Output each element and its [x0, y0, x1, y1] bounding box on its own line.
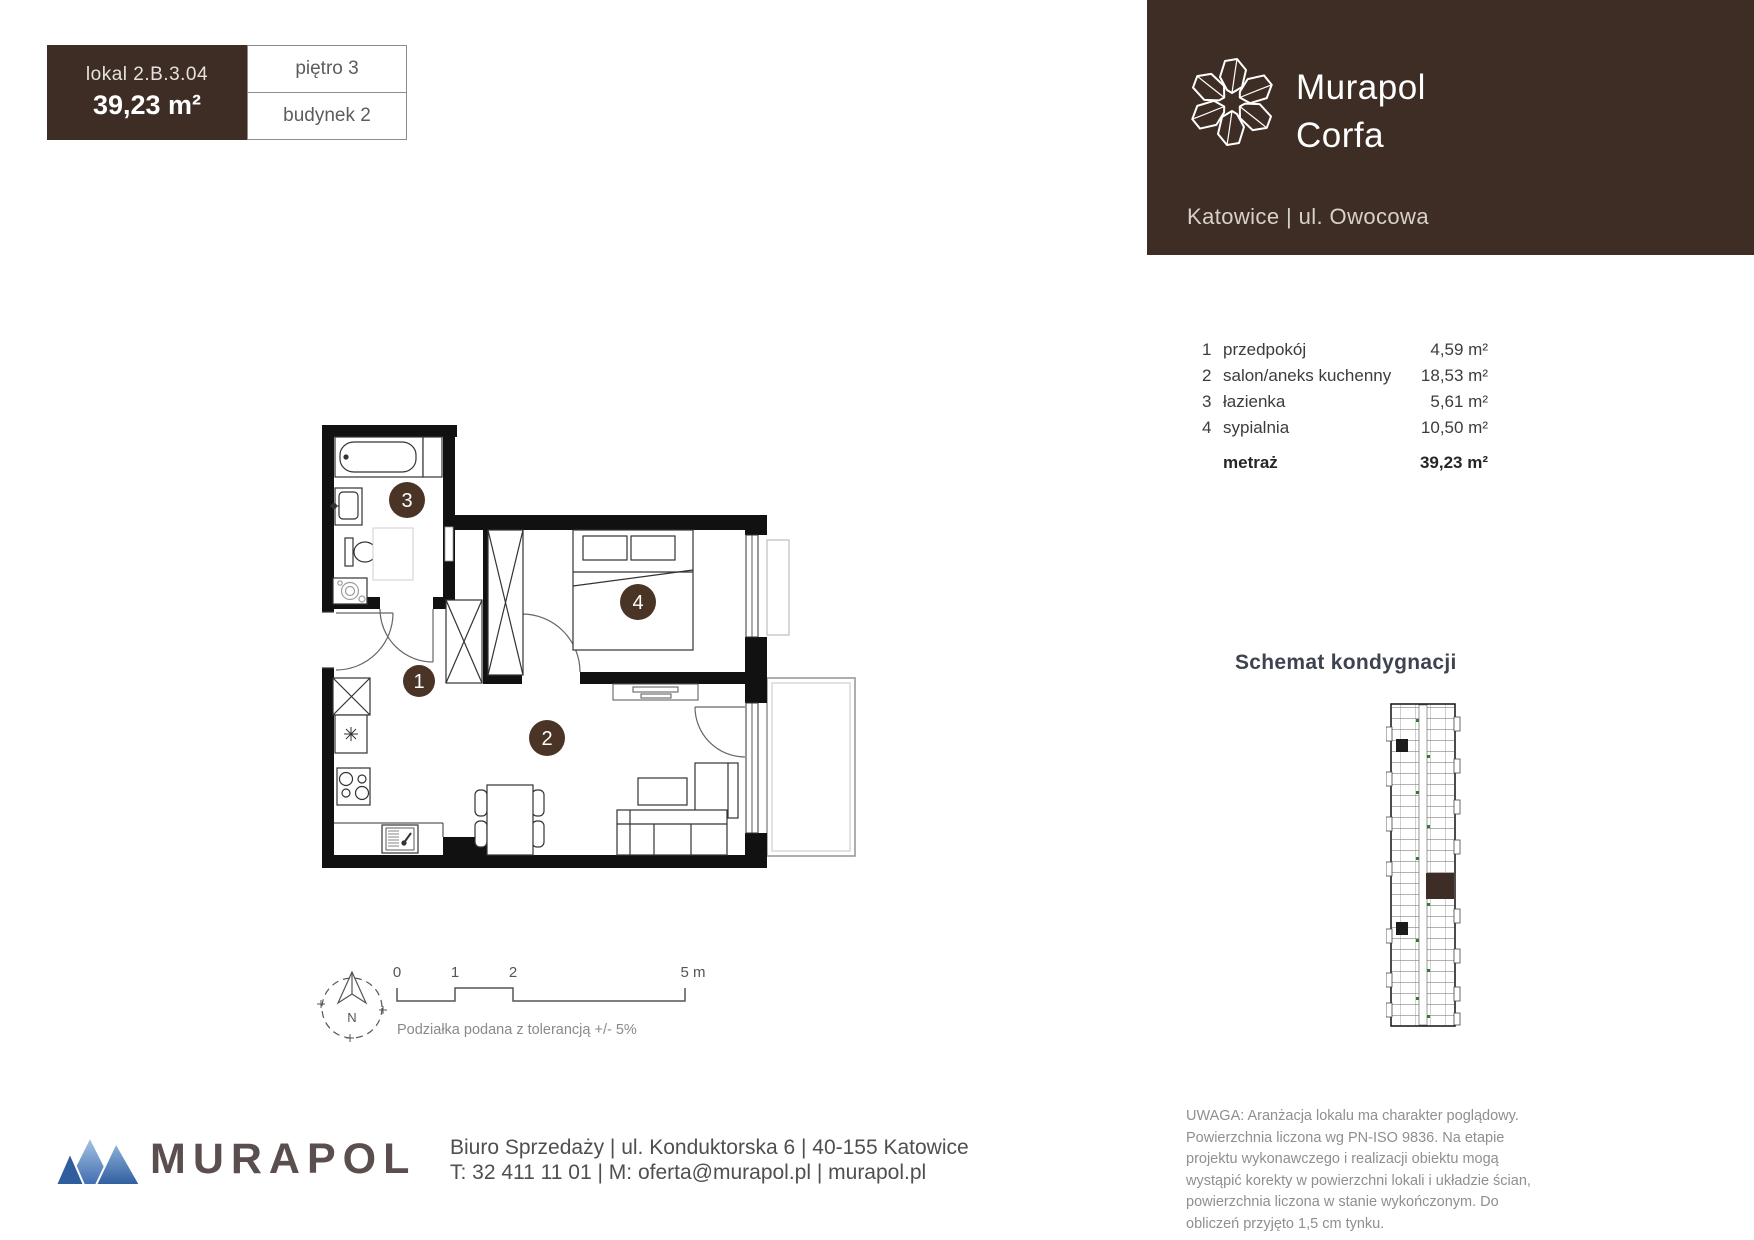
stair-core: [1396, 922, 1408, 935]
badge-living-label: 2: [541, 728, 552, 750]
svg-text:1: 1: [451, 964, 459, 981]
floor-plan: 3 1 2 4: [280, 380, 880, 880]
room-area: 10,50 m²: [1421, 418, 1488, 438]
bathroom-fixtures: [330, 437, 442, 604]
svg-text:0: 0: [393, 964, 401, 981]
scale-tolerance-note: Podziałka podana z tolerancją +/- 5%: [397, 1022, 637, 1038]
project-name-line2: Corfa: [1296, 112, 1426, 160]
unit-floor: piętro 3: [248, 46, 406, 93]
room-area: 4,59 m²: [1430, 340, 1488, 360]
room-no: 1: [1202, 340, 1223, 360]
room-name: sypialnia: [1223, 418, 1421, 438]
pillow: [631, 536, 675, 560]
project-location: Katowice | ul. Owocowa: [1187, 204, 1429, 230]
balcony-door: [695, 707, 745, 757]
chair: [475, 790, 487, 816]
total-label: metraż: [1223, 453, 1420, 473]
schematic-title: Schemat kondygnacji: [1235, 651, 1457, 675]
room-row: 1 przedpokój 4,59 m²: [1190, 340, 1488, 366]
room-row: 2 salon/aneks kuchenny 18,53 m²: [1190, 366, 1488, 392]
room-area: 18,53 m²: [1421, 366, 1488, 386]
toilet: [345, 538, 353, 566]
bedroom-furniture: [488, 530, 693, 675]
murapol-crystal-logo-icon: [1180, 40, 1290, 165]
wall-recess: [445, 527, 453, 561]
room-area: 5,61 m²: [1430, 392, 1488, 412]
kitchen-living-furniture: [333, 678, 738, 855]
building-floor-schematic: [1386, 697, 1464, 1033]
balcony-window-door: [746, 703, 758, 833]
unit-area: 39,23 m²: [93, 90, 201, 121]
brochure-page: lokal 2.B.3.04 39,23 m² piętro 3 budynek…: [0, 0, 1754, 1240]
badge-bath-label: 3: [401, 490, 412, 512]
chair: [475, 821, 487, 847]
fridge: [333, 678, 370, 715]
total-row: metraż 39,23 m²: [1190, 453, 1488, 479]
unit-floor-building-box: piętro 3 budynek 2: [247, 45, 407, 140]
room-no: 2: [1202, 366, 1223, 386]
kitchen-sink: [382, 825, 418, 853]
room-no: 4: [1202, 418, 1223, 438]
pillow: [583, 536, 627, 560]
badge-bedroom-label: 4: [632, 592, 643, 614]
balcony: [767, 678, 855, 856]
highlighted-unit: [1426, 873, 1454, 899]
stair-core: [1396, 739, 1408, 752]
chair: [532, 790, 544, 816]
unit-number: lokal 2.B.3.04: [86, 64, 208, 86]
bedroom-door: [522, 614, 580, 672]
oven: [335, 715, 367, 753]
stove: [337, 768, 370, 805]
room-name: łazienka: [1223, 392, 1430, 412]
footer-brand-wordmark: MURAPOL: [150, 1135, 416, 1184]
window-sill: [767, 540, 789, 635]
unit-info-box: lokal 2.B.3.04 39,23 m²: [47, 45, 247, 140]
footer-phone-line: T: 32 411 11 01 | M: oferta@murapol.pl |…: [450, 1160, 969, 1185]
svg-text:2: 2: [509, 964, 517, 981]
hall-wardrobe: [446, 600, 482, 683]
svg-text:5 m: 5 m: [680, 964, 705, 981]
scale-ticks: 0 1 2 5 m: [393, 964, 706, 981]
bath-mat: [373, 528, 413, 580]
bath-cabinet: [423, 437, 442, 477]
total-area: 39,23 m²: [1420, 453, 1488, 473]
tv-sideboard: [613, 684, 698, 700]
compass-icon: [317, 972, 387, 1042]
sofa: [617, 810, 727, 855]
bedroom-window: [746, 535, 758, 637]
room-list: 1 przedpokój 4,59 m² 2 salon/aneks kuche…: [1190, 340, 1488, 479]
footer-address-line: Biuro Sprzedaży | ul. Konduktorska 6 | 4…: [450, 1135, 969, 1160]
washing-machine: [333, 578, 367, 604]
room-row: 3 łazienka 5,61 m²: [1190, 392, 1488, 418]
compass-north-label: N: [347, 1010, 356, 1025]
scale-bar: [397, 988, 685, 1001]
room-no: 3: [1202, 392, 1223, 412]
entrance-door: [336, 613, 393, 670]
coffee-table: [638, 778, 687, 805]
unit-building: budynek 2: [248, 93, 406, 140]
dining-table: [475, 785, 544, 855]
project-name-line1: Murapol: [1296, 64, 1426, 112]
room-row: 4 sypialnia 10,50 m²: [1190, 418, 1488, 444]
room-name: salon/aneks kuchenny: [1223, 366, 1421, 386]
footer-contact: Biuro Sprzedaży | ul. Konduktorska 6 | 4…: [450, 1135, 969, 1185]
disclaimer-text: UWAGA: Aranżacja lokalu ma charakter pog…: [1186, 1106, 1550, 1236]
room-name: przedpokój: [1223, 340, 1430, 360]
chair: [532, 821, 544, 847]
scale-and-compass: N 0 1 2 5 m Podziałka podana z tolerancj…: [300, 950, 720, 1050]
corridor: [1419, 705, 1427, 1025]
project-name: Murapol Corfa: [1296, 64, 1426, 160]
badge-hall-label: 1: [413, 671, 424, 693]
murapol-mountains-logo-icon: [56, 1131, 140, 1185]
